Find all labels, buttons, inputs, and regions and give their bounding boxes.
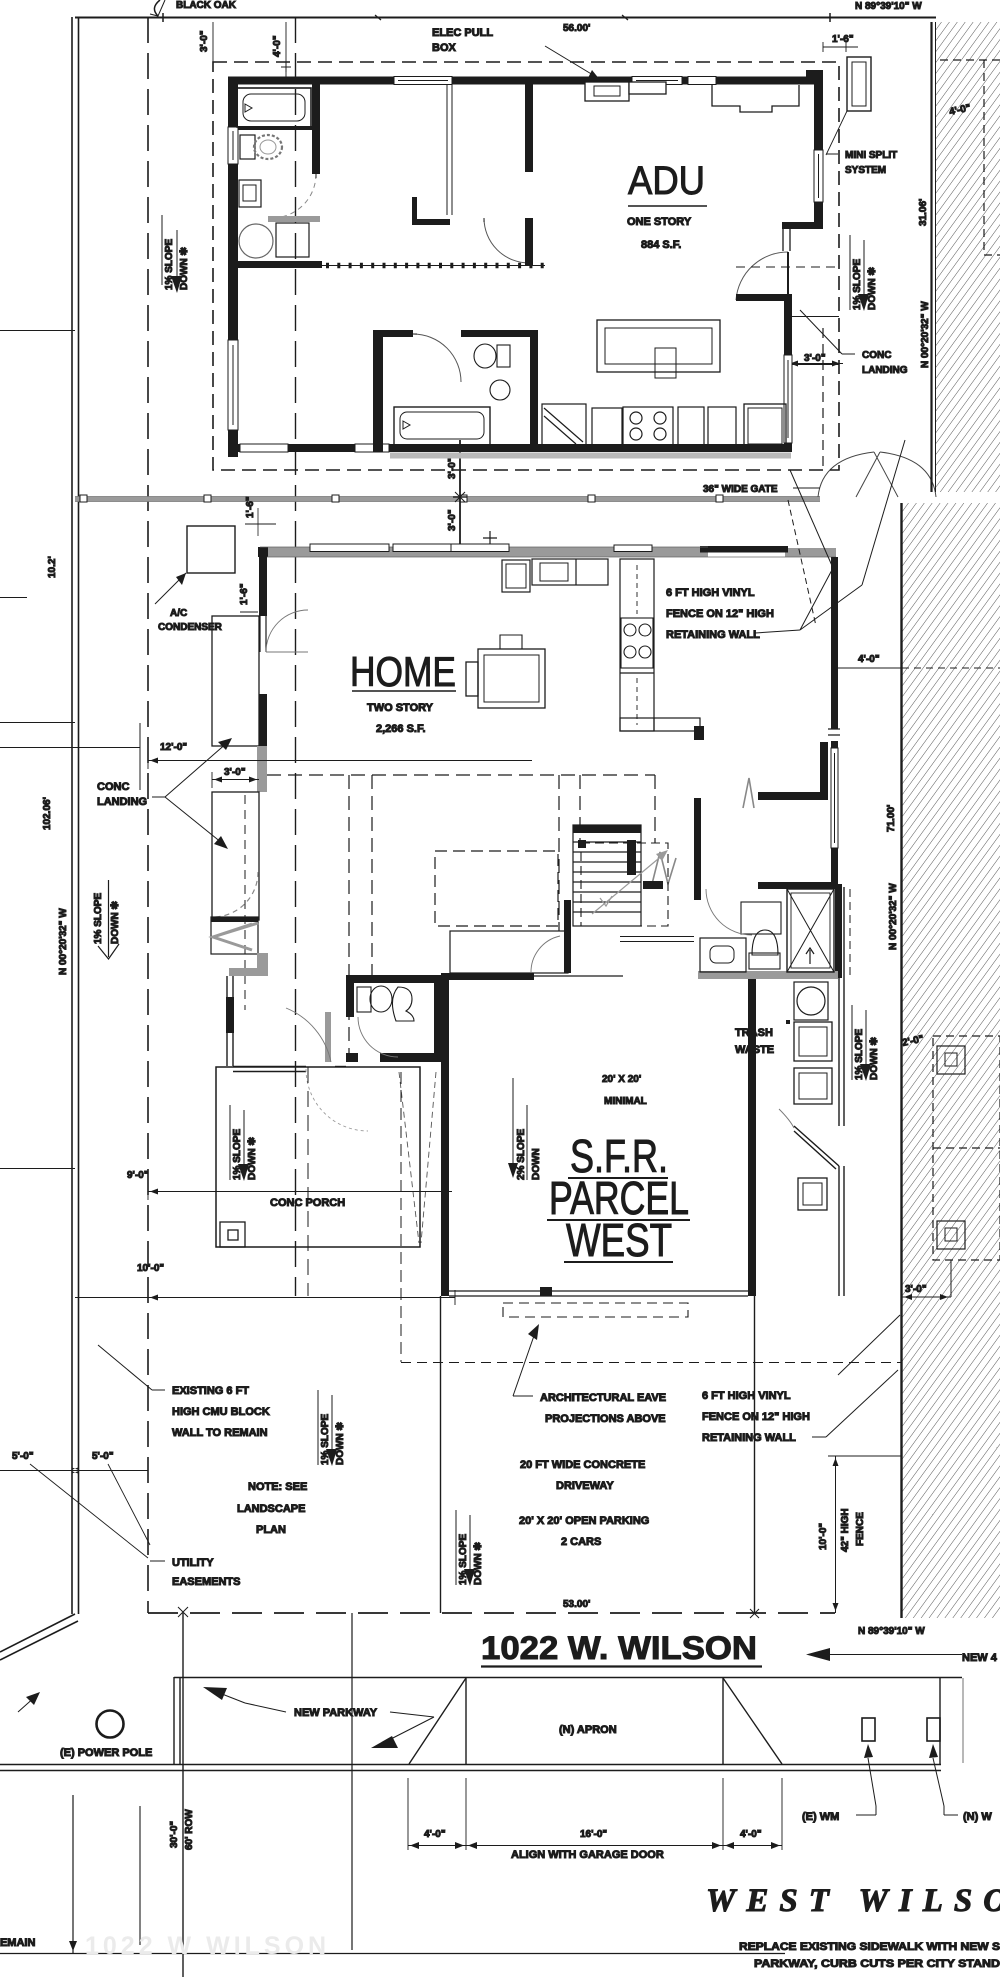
svg-text:HOME: HOME xyxy=(350,648,456,695)
svg-text:NEW 4: NEW 4 xyxy=(962,1652,998,1664)
svg-text:DOWN ✱: DOWN ✱ xyxy=(110,901,121,944)
svg-text:REMAIN: REMAIN xyxy=(0,1937,35,1949)
svg-text:FENCE ON 12" HIGH: FENCE ON 12" HIGH xyxy=(702,1411,810,1423)
svg-text:16'-0": 16'-0" xyxy=(580,1829,607,1840)
svg-text:EASEMENTS: EASEMENTS xyxy=(172,1576,240,1588)
svg-text:N 89°39'10" W: N 89°39'10" W xyxy=(855,1,922,12)
svg-text:N 00°20'32" W: N 00°20'32" W xyxy=(58,908,69,975)
svg-text:LANDING: LANDING xyxy=(862,365,908,376)
svg-text:CONC: CONC xyxy=(97,781,129,793)
svg-text:(E) WM: (E) WM xyxy=(802,1811,839,1823)
svg-text:10.2': 10.2' xyxy=(47,556,58,578)
svg-text:3'-0": 3'-0" xyxy=(224,767,246,778)
svg-text:12'-0": 12'-0" xyxy=(160,742,187,753)
svg-text:60' ROW: 60' ROW xyxy=(184,1809,195,1850)
svg-text:WEST WILSON: WEST WILSON xyxy=(706,1883,1000,1919)
svg-text:WEST: WEST xyxy=(566,1214,672,1266)
svg-text:DRIVEWAY: DRIVEWAY xyxy=(556,1480,614,1492)
svg-text:1'-6": 1'-6" xyxy=(239,583,250,605)
svg-text:1022 W WILSON: 1022 W WILSON xyxy=(85,1932,330,1960)
svg-text:UTILITY: UTILITY xyxy=(172,1557,214,1569)
svg-text:5'-0": 5'-0" xyxy=(92,1451,114,1462)
svg-text:A/C: A/C xyxy=(170,608,187,619)
svg-text:1022 W. WILSON: 1022 W. WILSON xyxy=(481,1630,757,1666)
svg-text:TWO STORY: TWO STORY xyxy=(367,702,434,714)
svg-text:LANDING: LANDING xyxy=(97,796,147,808)
svg-text:DOWN ✱: DOWN ✱ xyxy=(335,1422,346,1465)
svg-text:REPLACE EXISTING SIDEWALK WITH: REPLACE EXISTING SIDEWALK WITH NEW S xyxy=(739,1941,1000,1953)
svg-text:71.00': 71.00' xyxy=(886,805,897,832)
svg-text:9'-0": 9'-0" xyxy=(127,1170,149,1181)
svg-text:5'-0": 5'-0" xyxy=(12,1451,34,1462)
svg-text:TRASH: TRASH xyxy=(735,1027,773,1039)
svg-text:1'-6": 1'-6" xyxy=(245,496,256,518)
svg-text:2 CARS: 2 CARS xyxy=(561,1536,601,1548)
svg-text:3'-0": 3'-0" xyxy=(447,457,458,479)
svg-text:ARCHITECTURAL EAVE: ARCHITECTURAL EAVE xyxy=(540,1392,666,1404)
svg-text:ONE STORY: ONE STORY xyxy=(627,216,692,228)
svg-text:30'-0": 30'-0" xyxy=(169,1821,180,1848)
svg-text:4'-0": 4'-0" xyxy=(740,1829,762,1840)
svg-text:(N) W: (N) W xyxy=(963,1811,992,1823)
svg-text:PLAN: PLAN xyxy=(256,1524,286,1536)
svg-text:1% SLOPE: 1% SLOPE xyxy=(93,893,104,944)
svg-text:DOWN ✱: DOWN ✱ xyxy=(867,267,878,310)
svg-text:SYSTEM: SYSTEM xyxy=(845,165,886,176)
svg-text:20' X 20': 20' X 20' xyxy=(602,1074,641,1085)
svg-text:MINI SPLIT: MINI SPLIT xyxy=(845,150,897,161)
svg-text:RETAINING WALL: RETAINING WALL xyxy=(666,629,760,641)
svg-text:3'-0": 3'-0" xyxy=(199,30,210,52)
svg-text:WALL TO REMAIN: WALL TO REMAIN xyxy=(172,1427,268,1439)
svg-text:FENCE: FENCE xyxy=(855,1512,866,1546)
svg-text:CONC: CONC xyxy=(862,350,891,361)
svg-text:1'-6": 1'-6" xyxy=(832,34,854,45)
svg-text:NOTE: SEE: NOTE: SEE xyxy=(248,1481,307,1493)
svg-text:EXISTING 6 FT: EXISTING 6 FT xyxy=(172,1385,249,1397)
svg-text:4'-0": 4'-0" xyxy=(272,35,283,57)
svg-text:WASTE: WASTE xyxy=(735,1044,774,1056)
svg-text:HIGH CMU BLOCK: HIGH CMU BLOCK xyxy=(172,1406,270,1418)
svg-text:DOWN: DOWN xyxy=(531,1148,542,1180)
svg-text:2,266 S.F.: 2,266 S.F. xyxy=(376,723,426,735)
svg-text:NEW PARKWAY: NEW PARKWAY xyxy=(294,1707,378,1719)
svg-text:6 FT HIGH VINYL: 6 FT HIGH VINYL xyxy=(666,587,755,599)
svg-text:56.00': 56.00' xyxy=(563,23,590,34)
svg-text:884 S.F.: 884 S.F. xyxy=(641,239,681,251)
svg-text:ELEC PULL: ELEC PULL xyxy=(432,27,493,39)
svg-text:DOWN ✱: DOWN ✱ xyxy=(869,1037,880,1080)
svg-text:(E) POWER POLE: (E) POWER POLE xyxy=(60,1747,152,1759)
svg-text:ADU: ADU xyxy=(628,159,705,203)
svg-text:ALIGN WITH GARAGE DOOR: ALIGN WITH GARAGE DOOR xyxy=(511,1849,664,1861)
svg-text:3'-0": 3'-0" xyxy=(447,509,458,531)
svg-text:4'-0": 4'-0" xyxy=(858,654,880,665)
svg-text:36" WIDE GATE: 36" WIDE GATE xyxy=(703,484,778,495)
svg-text:N 00°20'32" W: N 00°20'32" W xyxy=(920,301,931,368)
svg-text:6 FT HIGH VINYL: 6 FT HIGH VINYL xyxy=(702,1390,791,1402)
svg-text:CONC PORCH: CONC PORCH xyxy=(270,1197,345,1209)
svg-text:PROJECTIONS ABOVE: PROJECTIONS ABOVE xyxy=(545,1413,666,1425)
svg-text:BOX: BOX xyxy=(432,42,457,54)
svg-text:10'-0": 10'-0" xyxy=(818,1523,829,1550)
svg-text:LANDSCAPE: LANDSCAPE xyxy=(237,1503,305,1515)
svg-text:20' X 20' OPEN PARKING: 20' X 20' OPEN PARKING xyxy=(519,1515,649,1527)
svg-text:102.06': 102.06' xyxy=(42,797,53,830)
svg-text:(N) APRON: (N) APRON xyxy=(559,1724,617,1736)
svg-text:BLACK OAK: BLACK OAK xyxy=(176,0,237,11)
svg-text:DOWN ✱: DOWN ✱ xyxy=(247,1137,258,1180)
svg-text:CONDENSER: CONDENSER xyxy=(158,622,223,633)
svg-text:10'-0": 10'-0" xyxy=(137,1263,164,1274)
svg-text:RETAINING WALL: RETAINING WALL xyxy=(702,1432,796,1444)
svg-text:4'-0": 4'-0" xyxy=(424,1829,446,1840)
svg-text:3'-0": 3'-0" xyxy=(905,1284,927,1295)
svg-text:31.06': 31.06' xyxy=(918,199,929,226)
svg-text:PARKWAY, CURB CUTS PER CITY ST: PARKWAY, CURB CUTS PER CITY STAND xyxy=(754,1958,1000,1970)
svg-text:N 89°39'10" W: N 89°39'10" W xyxy=(858,1626,925,1637)
svg-text:2% SLOPE: 2% SLOPE xyxy=(516,1129,527,1180)
svg-text:DOWN ✱: DOWN ✱ xyxy=(473,1542,484,1585)
svg-text:DOWN ✱: DOWN ✱ xyxy=(179,247,190,290)
svg-text:42" HIGH: 42" HIGH xyxy=(840,1508,851,1552)
svg-text:FENCE ON 12" HIGH: FENCE ON 12" HIGH xyxy=(666,608,774,620)
svg-text:20 FT WIDE CONCRETE: 20 FT WIDE CONCRETE xyxy=(520,1459,645,1471)
svg-text:53.00': 53.00' xyxy=(563,1599,590,1610)
svg-text:N 00°20'32" W: N 00°20'32" W xyxy=(888,883,899,950)
svg-text:MINIMAL: MINIMAL xyxy=(604,1096,647,1107)
